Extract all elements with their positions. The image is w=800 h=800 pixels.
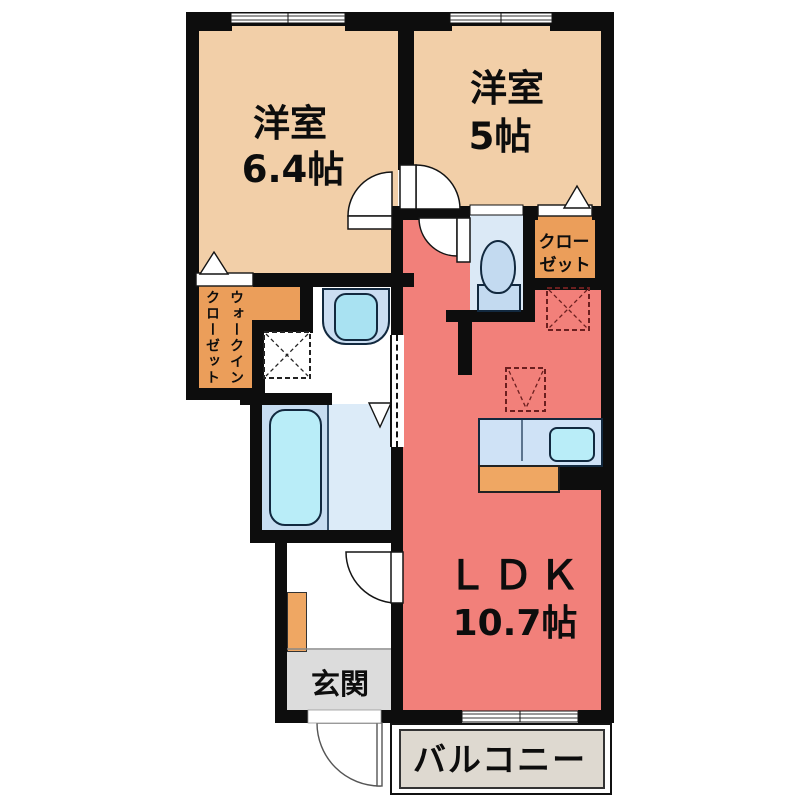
entrance-label: 玄関 — [311, 661, 369, 703]
wall-center-band-c — [592, 206, 614, 220]
floorplan: 洋室 6.4帖 洋室 5帖 クロー ゼット ウォークイン クローゼット ＬＤＫ … — [0, 0, 800, 800]
wall-right — [601, 12, 614, 723]
wall-toilet-right — [523, 206, 535, 322]
wall-hall-left-upper — [391, 206, 403, 335]
wall-bedroom1-bottom-a — [186, 273, 196, 287]
walk-in-closet-label: ウォークイン クローゼット — [198, 290, 246, 392]
wall-kitchen-stub — [458, 322, 472, 375]
bath-floor-right — [329, 403, 391, 530]
shoe-cabinet — [287, 592, 307, 652]
wall-hall-left-lower — [391, 602, 403, 712]
wall-wic-washroom — [300, 287, 313, 333]
ldk-size: 10.7帖 — [453, 594, 578, 646]
ldk-label: ＬＤＫ — [447, 543, 585, 601]
sliding-door-dash — [396, 335, 398, 447]
window-balcony — [462, 711, 578, 722]
wall-bottom-a — [275, 710, 308, 723]
walk-in-closet-label-col1: ウォークイン — [226, 290, 246, 392]
closet-label-line2: ゼット — [540, 251, 591, 276]
bedroom2-size: 5帖 — [469, 106, 532, 160]
wall-entrance-left — [275, 543, 287, 723]
bathtub — [269, 409, 322, 526]
kitchen-cabinet — [478, 465, 560, 493]
wall-closet-bottom — [523, 278, 614, 290]
toilet-bowl — [480, 240, 516, 294]
wall-bottom-b — [381, 710, 462, 723]
wall-bottom-c — [578, 710, 614, 723]
wall-bath-bottom — [250, 530, 403, 543]
wall-bath-left — [250, 393, 262, 543]
washing-machine-space — [264, 332, 310, 378]
bedroom2-label: 洋室 — [470, 58, 544, 112]
wall-between-bedrooms — [398, 12, 414, 170]
door-hall — [346, 552, 403, 603]
closet-label-line1: クロー — [539, 228, 590, 253]
walk-in-closet-floor-ext — [253, 286, 300, 320]
washbasin-sink — [334, 293, 378, 341]
walk-in-closet-label-col2: クローゼット — [202, 290, 222, 392]
door-entrance — [317, 723, 382, 786]
bedroom1-size: 6.4帖 — [242, 139, 345, 193]
wall-wic-right — [252, 320, 265, 393]
balcony-label: バルコニー — [413, 733, 587, 781]
kitchen-sink — [549, 427, 595, 462]
wall-bedroom1-bottom-b — [253, 273, 414, 287]
